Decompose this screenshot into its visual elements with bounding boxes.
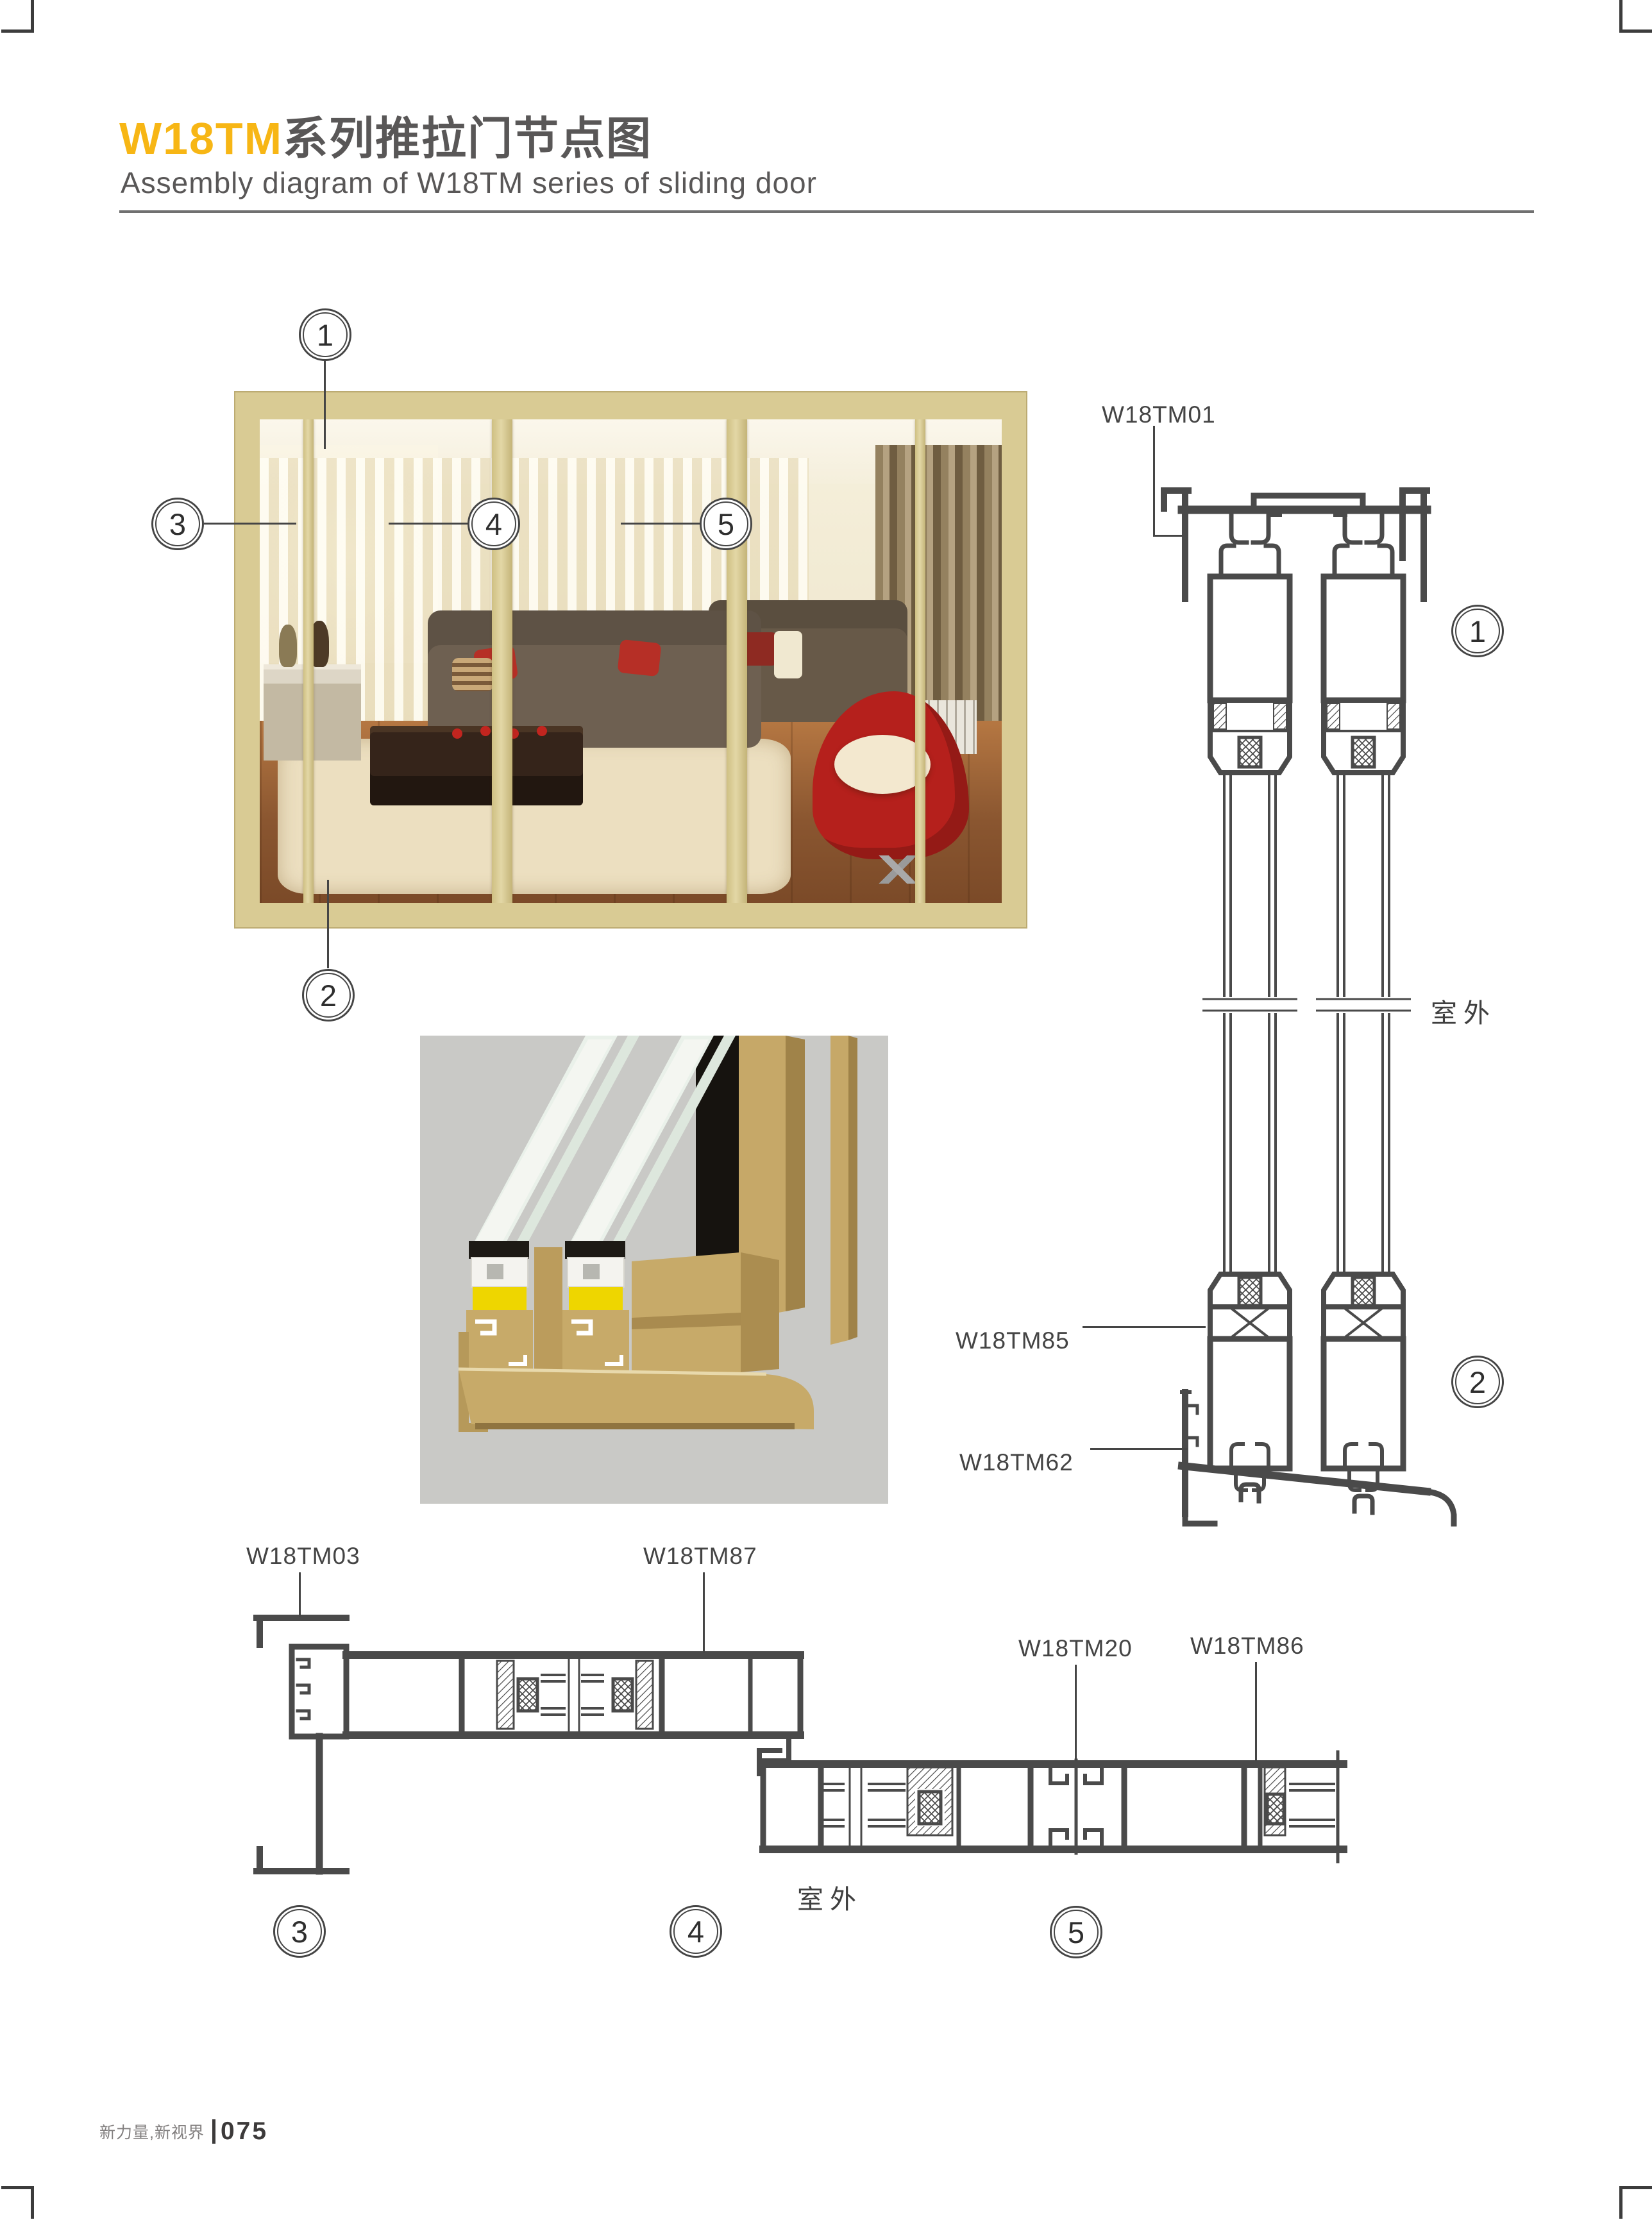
profile-3d-render (420, 1036, 888, 1504)
door-stile-3 (727, 419, 747, 903)
leader-jamb (299, 1572, 301, 1617)
section-callout-5-badge: 5 (1050, 1906, 1102, 1958)
label-jamb: W18TM03 (246, 1543, 360, 1570)
callout-1-leader (324, 360, 326, 449)
lock-stile-profile (1244, 1752, 1338, 1862)
page-footer: 新力量,新视界 075 (99, 2117, 268, 2146)
door-stile-1 (303, 419, 314, 903)
leader-sill (1090, 1448, 1188, 1450)
label-lock-stile: W18TM86 (1190, 1633, 1304, 1660)
top-sash-profiles (1210, 546, 1403, 773)
crop-mark-top-left (1, 0, 34, 33)
section-callout-3-number: 3 (291, 1917, 308, 1947)
footer-page-number: 075 (221, 2117, 268, 2146)
mullion-profile (1031, 1760, 1124, 1853)
callout-3-leader (204, 523, 296, 525)
outdoor-label-vertical: 室外 (1431, 991, 1496, 1030)
photo-decor-berry (452, 728, 462, 739)
callout-5-badge: 5 (700, 498, 752, 550)
callout-5-number: 5 (718, 509, 734, 539)
lower-leaf-profiles (759, 1751, 1344, 1862)
page-title-series-code: W18TM (119, 114, 283, 164)
callout-5-leader (621, 523, 700, 525)
callout-2-leader (327, 880, 329, 968)
callout-2-badge: 2 (302, 969, 355, 1022)
page-subtitle: Assembly diagram of W18TM series of slid… (121, 165, 817, 200)
section-callout-3-badge: 3 (273, 1905, 326, 1958)
upper-leaf-profiles (346, 1654, 800, 1761)
jamb-profile (257, 1618, 346, 1871)
section-callout-1-badge: 1 (1451, 605, 1504, 657)
photo-figurine (279, 625, 297, 667)
label-interlock: W18TM87 (643, 1543, 757, 1570)
page-title: W18TM系列推拉门节点图 (119, 103, 652, 167)
label-sill: W18TM62 (959, 1449, 1074, 1476)
leader-top-track-v (1153, 426, 1155, 536)
header-divider (119, 210, 1534, 213)
callout-1-badge: 1 (299, 308, 351, 361)
callout-4-badge: 4 (468, 498, 520, 550)
glass-panels (1224, 773, 1389, 1274)
render-yellow-gasket-2 (569, 1287, 623, 1310)
photo-striped-pillow (452, 658, 493, 691)
leader-top-track-h (1153, 535, 1183, 537)
label-sash-bottom: W18TM85 (956, 1327, 1070, 1354)
section-callout-2-number: 2 (1469, 1367, 1486, 1397)
callout-1-number: 1 (317, 320, 333, 350)
crop-mark-top-right (1619, 0, 1652, 33)
section-callout-1-number: 1 (1469, 616, 1486, 646)
label-top-track: W18TM01 (1102, 401, 1216, 428)
photo-decor-berry (480, 726, 491, 736)
page-title-chinese: 系列推拉门节点图 (283, 114, 652, 164)
bottom-sash-profiles (1210, 1274, 1403, 1490)
photo-table-lamp (774, 631, 802, 678)
callout-3-number: 3 (169, 509, 186, 539)
label-mullion: W18TM20 (1018, 1635, 1133, 1662)
living-room-photo (234, 391, 1027, 929)
door-stile-2 (492, 419, 512, 903)
leader-sash-bottom (1083, 1326, 1206, 1328)
crop-mark-bottom-right (1619, 2186, 1652, 2219)
leader-mullion (1075, 1665, 1077, 1761)
photo-coffee-table (370, 726, 583, 805)
catalog-page: W18TM系列推拉门节点图 Assembly diagram of W18TM … (0, 0, 1652, 2220)
callout-4-leader (389, 523, 468, 525)
section-callout-5-number: 5 (1068, 1917, 1084, 1947)
render-yellow-gasket (473, 1287, 527, 1310)
callout-2-number: 2 (320, 980, 337, 1011)
footer-divider-bar (212, 2119, 215, 2144)
callout-4-number: 4 (485, 509, 502, 539)
photo-decor-berry (537, 726, 547, 736)
footer-brand-slogan: 新力量,新视界 (99, 2120, 205, 2143)
door-glass-area (260, 419, 1002, 903)
glass-break-lines (1202, 999, 1411, 1011)
leader-interlock (703, 1572, 705, 1653)
section-callout-4-number: 4 (687, 1917, 704, 1947)
photo-red-pillow-2 (617, 639, 661, 677)
section-callout-4-badge: 4 (670, 1905, 722, 1958)
leader-lock-stile (1255, 1662, 1257, 1761)
outdoor-label-horizontal: 室外 (797, 1878, 863, 1916)
callout-3-badge: 3 (151, 498, 204, 550)
crop-mark-bottom-left (1, 2186, 34, 2219)
section-callout-2-badge: 2 (1451, 1356, 1504, 1408)
